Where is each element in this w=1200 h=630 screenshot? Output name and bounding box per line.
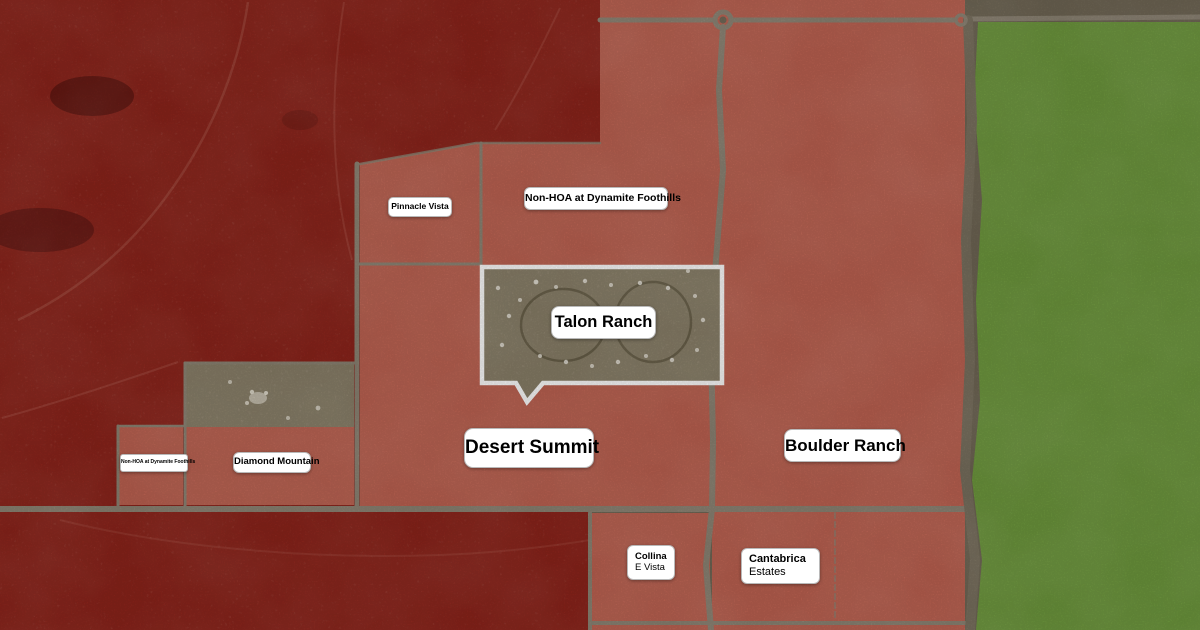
region-label-cantabrica-estates: Cantabrica Estates bbox=[741, 548, 820, 584]
region-label-text: Diamond Mountain bbox=[234, 457, 310, 468]
region-label-collina-e-vista: Collina E Vista bbox=[627, 545, 675, 580]
region-label-text-line2: Estates bbox=[749, 566, 819, 579]
region-label-boulder-ranch: Boulder Ranch bbox=[784, 429, 901, 462]
region-label-text: Non-HOA at Dynamite Foothills bbox=[525, 192, 667, 204]
region-label-text: Talon Ranch bbox=[552, 313, 655, 332]
region-label-text: Non-HOA at Dynamite Foothills bbox=[121, 460, 187, 466]
region-label-text-line1: Cantabrica bbox=[749, 553, 819, 566]
region-label-non-hoa-dynamite-small: Non-HOA at Dynamite Foothills bbox=[120, 454, 188, 472]
region-label-non-hoa-dynamite: Non-HOA at Dynamite Foothills bbox=[524, 187, 668, 210]
region-label-text: Desert Summit bbox=[465, 437, 593, 459]
region-label-text-line1: Collina bbox=[635, 552, 674, 563]
region-label-talon-ranch: Talon Ranch bbox=[551, 306, 656, 339]
region-label-text: Boulder Ranch bbox=[785, 436, 900, 456]
region-label-text: Pinnacle Vista bbox=[389, 202, 451, 212]
region-label-pinnacle-vista: Pinnacle Vista bbox=[388, 197, 452, 217]
region-label-text-line2: E Vista bbox=[635, 563, 674, 574]
region-label-diamond-mountain: Diamond Mountain bbox=[233, 452, 311, 473]
satellite-map: Pinnacle Vista Non-HOA at Dynamite Footh… bbox=[0, 0, 1200, 630]
region-label-desert-summit: Desert Summit bbox=[464, 428, 594, 468]
